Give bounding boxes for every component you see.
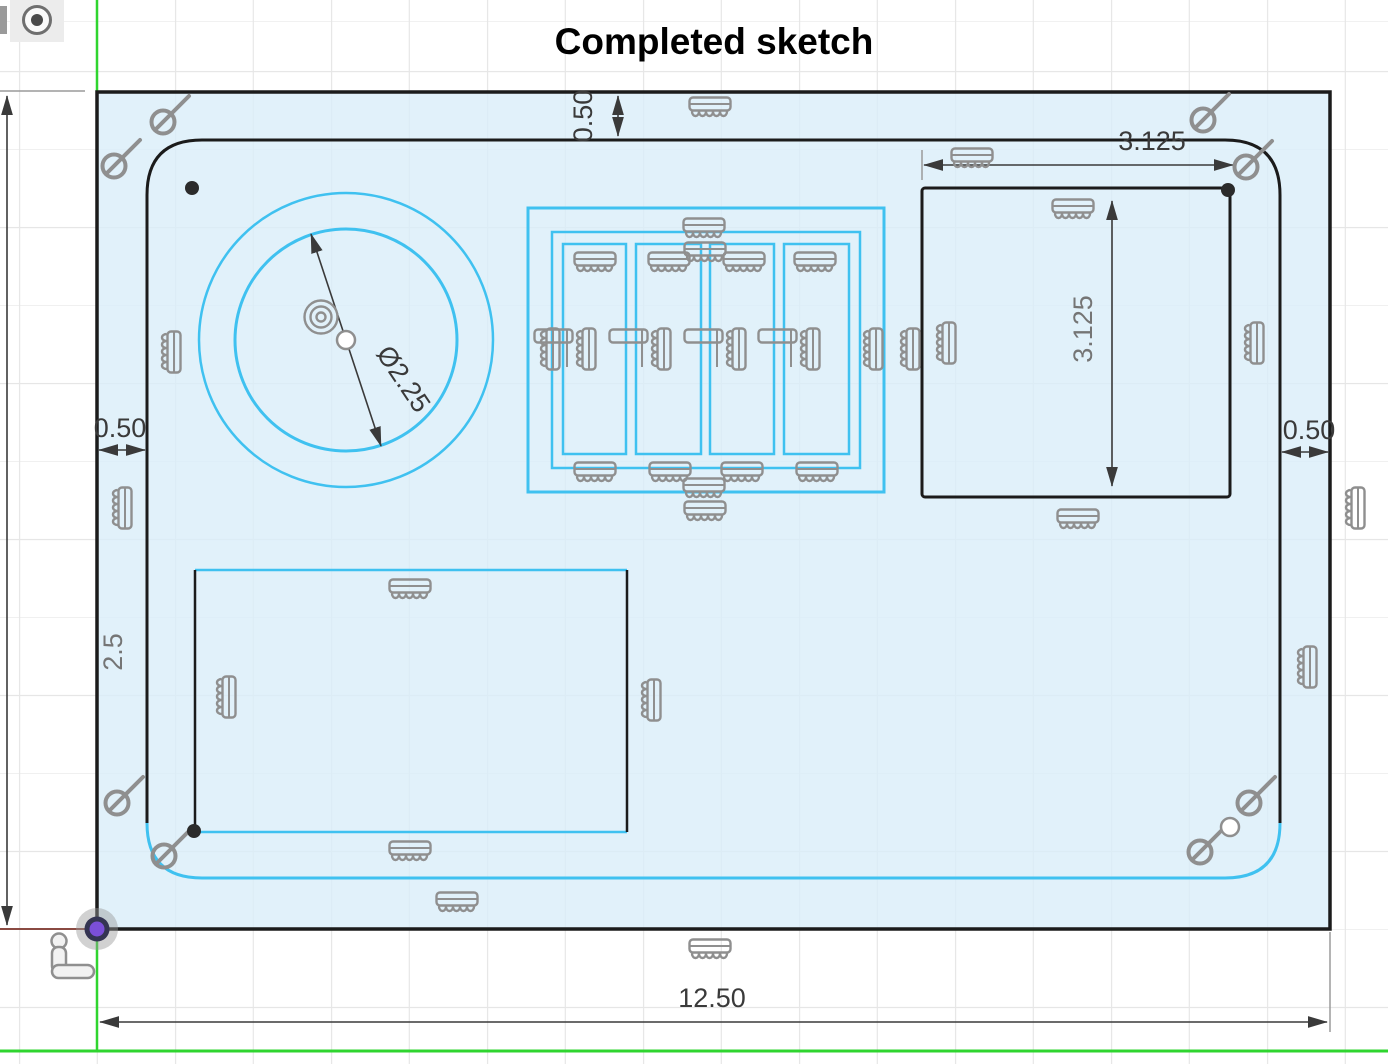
origin-point-icon[interactable] (76, 908, 118, 950)
dim-text-top-wall[interactable]: 0.50 (568, 90, 598, 143)
sketch-canvas[interactable]: 0.50 0.50 0.50 2.5 12.50 3.125 3.125 Ø2.… (0, 0, 1388, 1064)
view-indicator-icon[interactable] (10, 0, 64, 42)
sketch-point-dot[interactable] (1221, 183, 1235, 197)
page-title: Completed sketch (555, 21, 874, 62)
dim-text-pocket-offset[interactable]: 2.5 (98, 633, 128, 671)
dim-text-square-height[interactable]: 3.125 (1068, 295, 1098, 363)
dim-text-square-width[interactable]: 3.125 (1118, 126, 1186, 156)
fix-constraint-icon[interactable] (1346, 488, 1365, 529)
toolbar-edge-fragment (0, 6, 7, 34)
fix-constraint-icon[interactable] (690, 940, 731, 959)
sketch-point-dot[interactable] (185, 181, 199, 195)
dim-text-right-wall[interactable]: 0.50 (1283, 415, 1336, 445)
sketch-point-dot[interactable] (187, 824, 201, 838)
circle-center-point[interactable] (337, 331, 355, 349)
sketch-point[interactable] (1221, 818, 1239, 836)
dim-text-overall-width[interactable]: 12.50 (678, 983, 746, 1013)
dim-text-left-wall[interactable]: 0.50 (94, 413, 147, 443)
